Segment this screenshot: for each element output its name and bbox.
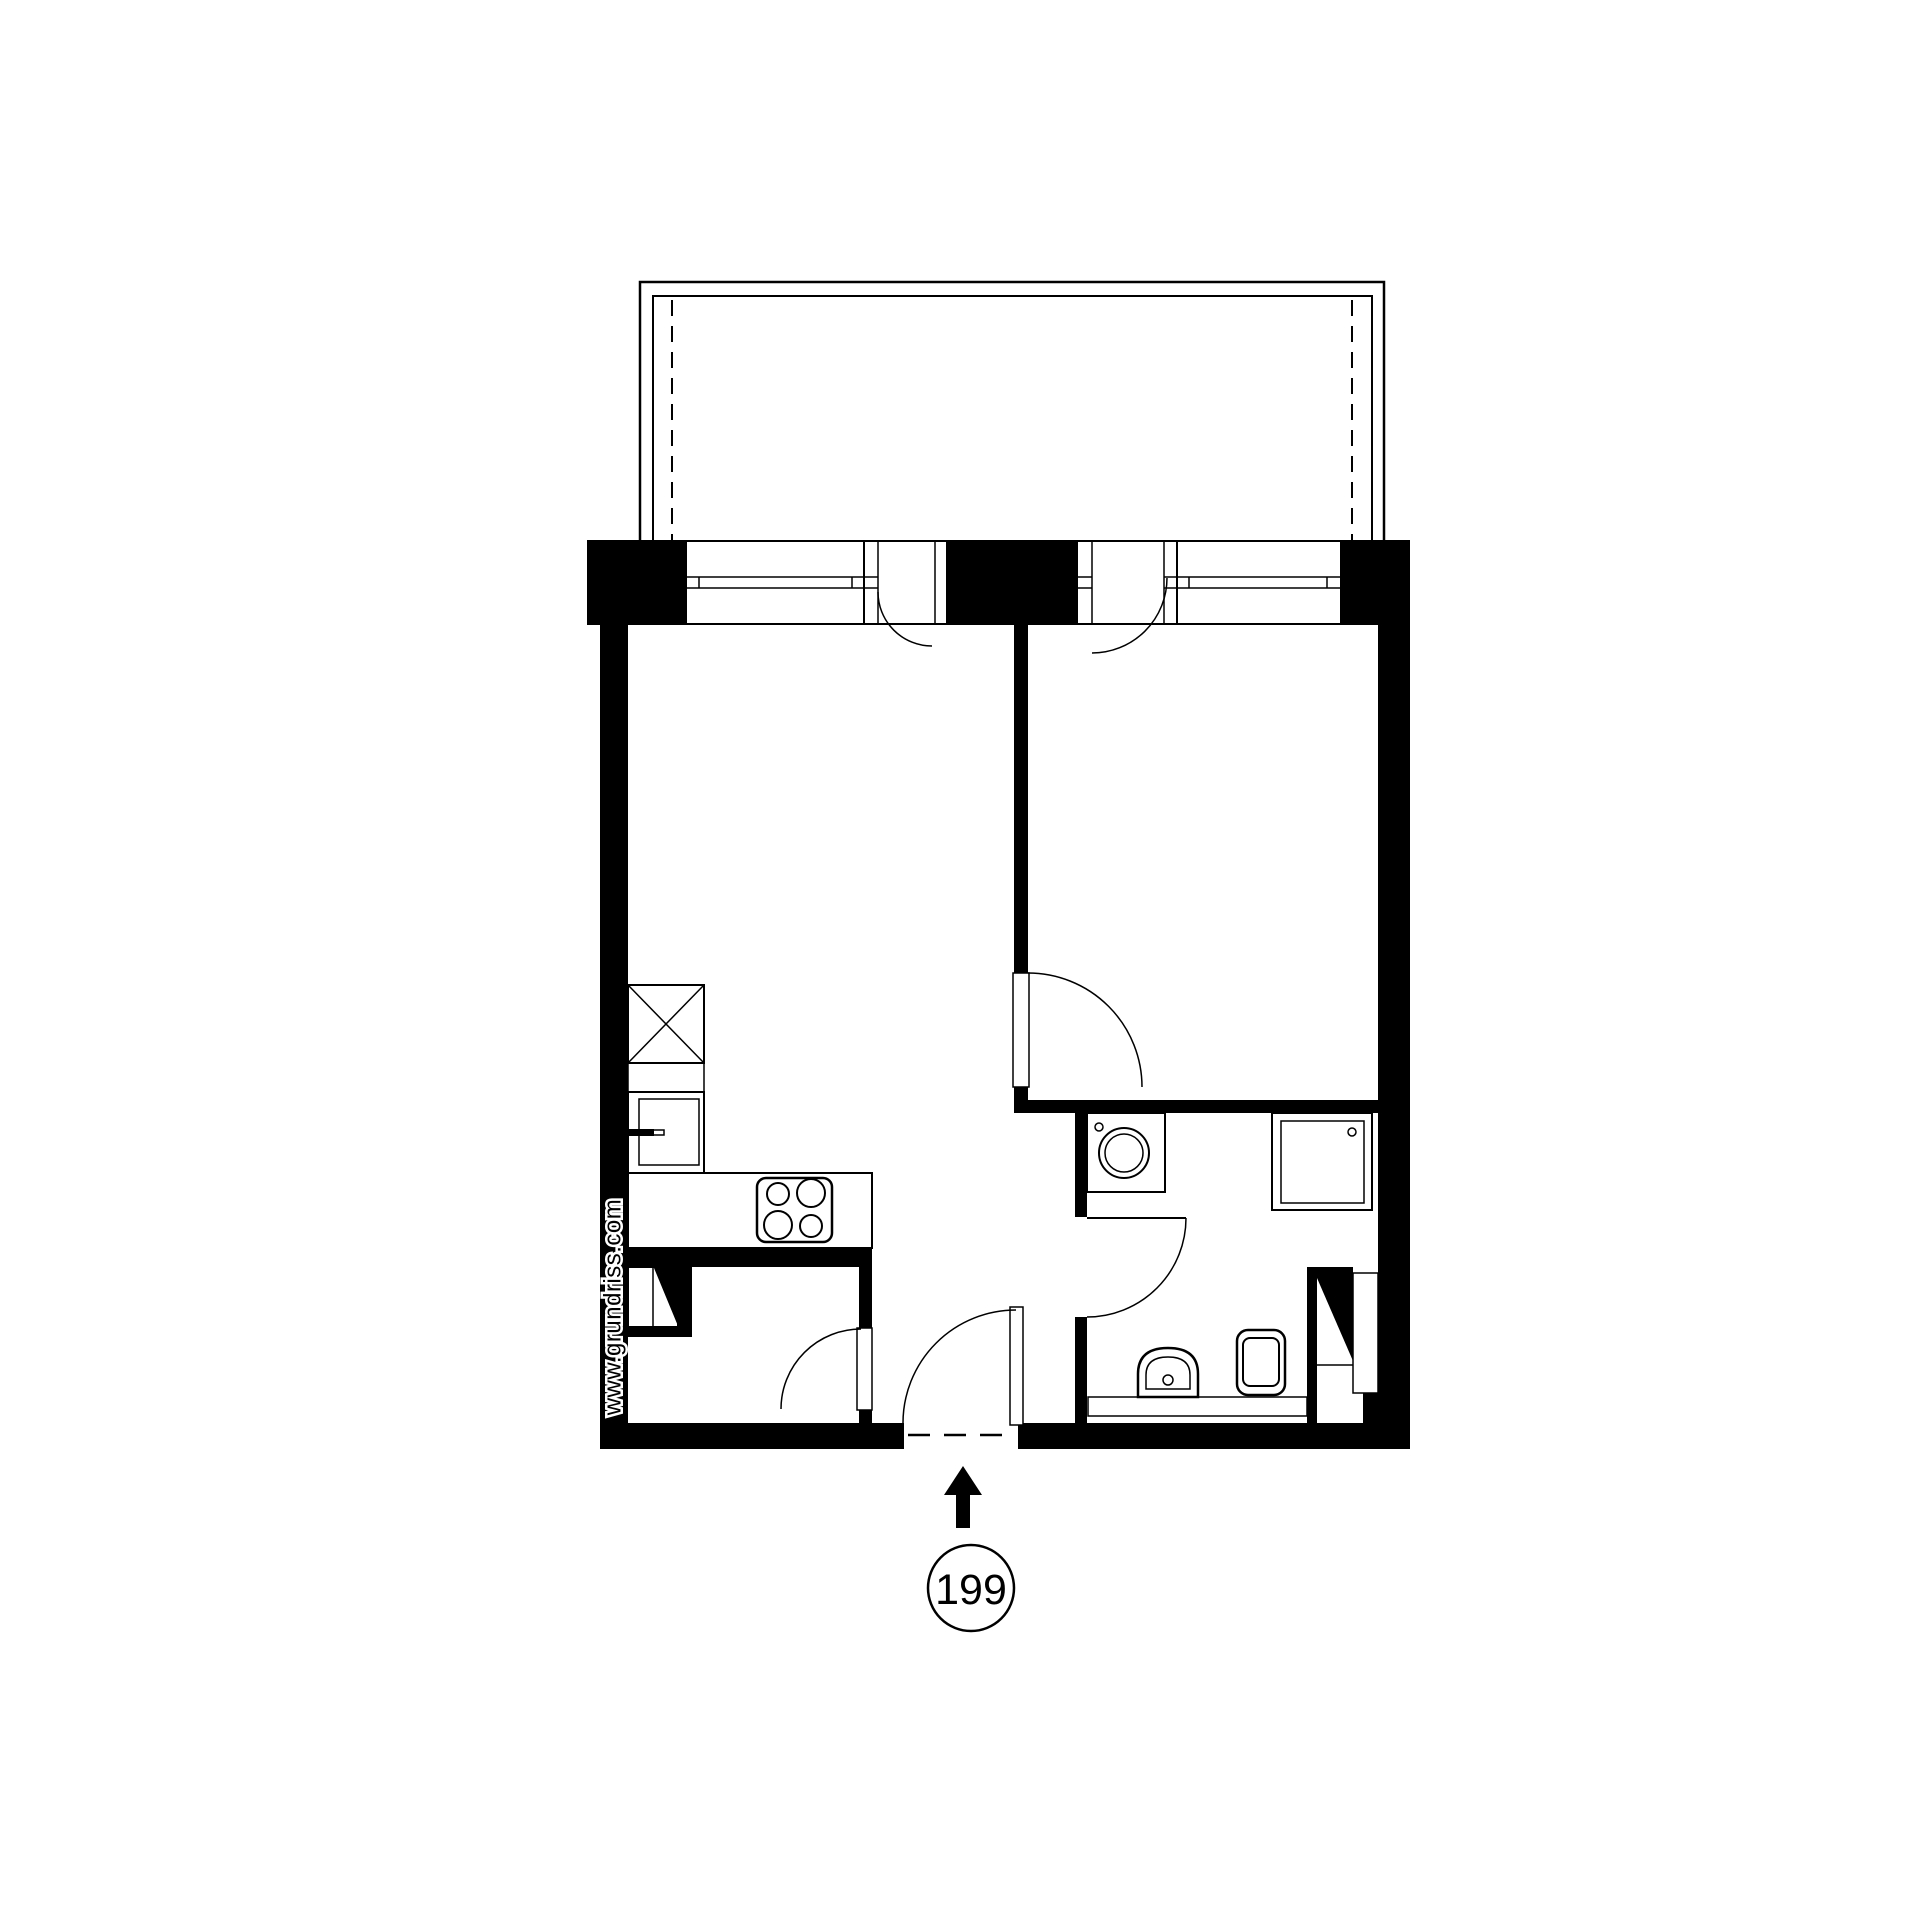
shaft-niche [1353, 1273, 1378, 1393]
balcony [640, 282, 1384, 542]
door-swing-arc [1087, 1218, 1186, 1317]
door-swing-arc [781, 1329, 861, 1409]
door-swing-arc [1092, 578, 1167, 653]
bathroom-door [1087, 1218, 1186, 1317]
pillar-top-middle [947, 541, 1077, 624]
kitchen [628, 985, 872, 1248]
kitchen-storage-wall [600, 1248, 872, 1267]
living-bedroom-divider [1014, 624, 1028, 973]
bedroom-door [1013, 973, 1142, 1087]
watermark: www.grundriss.com [600, 1199, 627, 1417]
washbasin-icon [1138, 1348, 1198, 1397]
bottom-wall-left [600, 1423, 904, 1449]
unit-number-badge: 199 [928, 1545, 1014, 1631]
entrance: 199 [903, 1307, 1023, 1631]
storage-room [628, 1267, 872, 1410]
window-bedroom [1164, 541, 1341, 624]
bathroom [1087, 1113, 1410, 1423]
fixture-baseline-strip [1088, 1397, 1307, 1416]
tall-cabinet-icon [628, 985, 704, 1063]
exterior-walls [600, 624, 1410, 1449]
washing-machine-icon [1087, 1113, 1165, 1192]
balcony-door-bedroom [1077, 541, 1177, 653]
top-wall-window-band [587, 541, 1410, 653]
kitchen-sink-icon [628, 1092, 704, 1173]
door-leaf [1013, 973, 1029, 1087]
storage-door [781, 1328, 872, 1410]
balcony-door-living-room [864, 541, 947, 646]
floor-plan-svg: 199 www.grundriss.com [0, 0, 1920, 1920]
entrance-arrow-icon [944, 1466, 982, 1528]
kitchen-counter [628, 1173, 872, 1248]
right-wall [1378, 624, 1410, 1449]
bottom-wall-right [1018, 1423, 1410, 1449]
door-swing-arc [878, 592, 932, 646]
door-swing-arc [1028, 973, 1142, 1087]
shower-icon [1272, 1113, 1372, 1210]
wardrobe-bottom-wall [628, 1327, 692, 1337]
entrance-door [903, 1307, 1023, 1425]
balcony-outer-rail [640, 282, 1384, 542]
wardrobe-side-wall [678, 1267, 692, 1337]
interior-walls [600, 624, 1378, 1423]
pillar-top-right [1341, 541, 1410, 624]
pillar-top-left [587, 541, 686, 624]
storage-right-wall-bottom [859, 1410, 872, 1423]
balcony-inner-rail [653, 296, 1372, 542]
door-leaf [857, 1328, 872, 1410]
door-leaf [1010, 1307, 1023, 1425]
window-living-room [686, 541, 878, 624]
bathroom-left-wall-top [1075, 1113, 1087, 1217]
bedroom-bottom-wall [1014, 1100, 1378, 1113]
toilet-icon [1237, 1330, 1285, 1395]
unit-number: 199 [935, 1566, 1007, 1614]
hob-icon [757, 1178, 832, 1242]
door-swing-arc [903, 1310, 1016, 1423]
storage-right-wall-top [859, 1267, 872, 1328]
kitchen-mid-unit [628, 1063, 704, 1092]
bathroom-left-wall-bottom [1075, 1317, 1087, 1423]
wardrobe-icon [628, 1267, 678, 1327]
floor-plan-page: 199 www.grundriss.com [0, 0, 1920, 1920]
